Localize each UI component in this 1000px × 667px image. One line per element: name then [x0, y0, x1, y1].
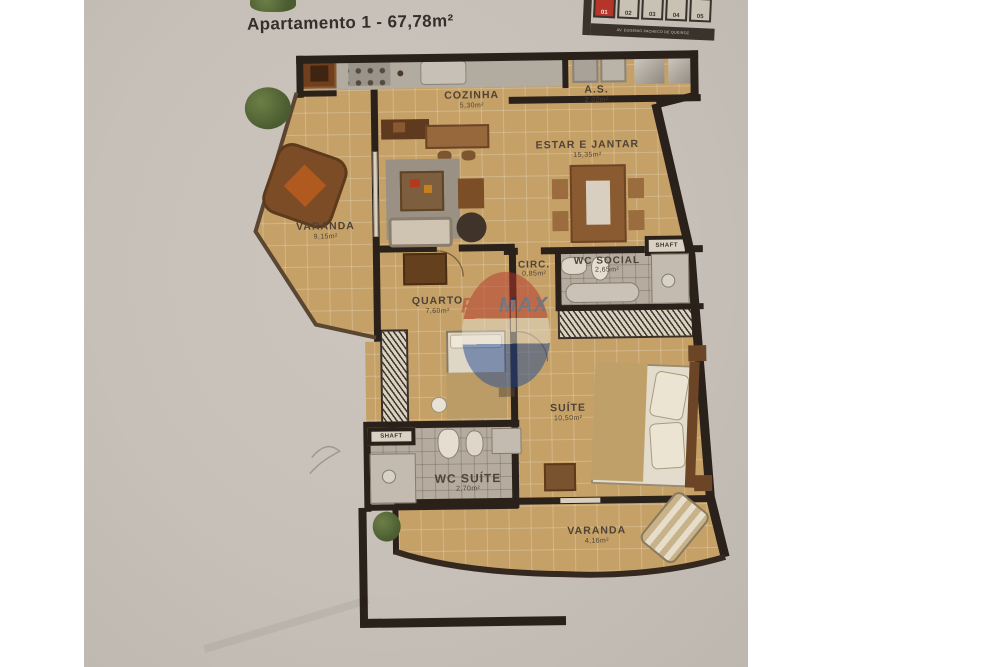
chair: [552, 179, 568, 199]
room-label-cozinha: COZINHA5,30m²: [417, 90, 527, 111]
room-label-varanda: VARANDA9,15m²: [280, 221, 370, 241]
table-runner: [586, 180, 611, 224]
bidet-icon: [465, 430, 483, 456]
remax-watermark: RE/MAX: [429, 267, 581, 411]
drain-icon: [661, 274, 675, 288]
floorplan-page: Apartamento 1 - 67,78m² 01 02 03 04 05 A…: [0, 0, 1000, 667]
toilet-icon: [437, 429, 459, 459]
tv-icon: [393, 122, 405, 132]
room-label-wc-suite: WC SUÍTE2,70m²: [422, 472, 514, 494]
sofa: [388, 217, 452, 248]
decor-item: [424, 185, 432, 193]
chair: [628, 178, 644, 198]
pillow: [649, 422, 686, 470]
chair: [552, 211, 568, 231]
room-label-varanda-2: VARANDA4,16m²: [551, 525, 643, 546]
remax-logo-text: RE/MAX: [429, 293, 579, 319]
nightstand: [688, 345, 706, 361]
cabinet: [458, 178, 484, 208]
kitchen-island: [425, 124, 489, 149]
balloon-icon: [461, 271, 551, 388]
remax-max: MAX: [499, 293, 549, 317]
coffee-table: [400, 171, 445, 212]
room-label-as: A.S.2,02m²: [573, 84, 621, 104]
floorplan: SHAFT SHAFT: [0, 0, 1000, 667]
bench: [544, 463, 576, 491]
nightstand: [694, 475, 712, 491]
decor-item: [410, 179, 420, 187]
room-label-estar: ESTAR E JANTAR15,35m²: [512, 139, 662, 160]
chair: [628, 210, 644, 230]
stool: [461, 150, 475, 160]
double-bed: [591, 354, 706, 492]
sink-icon: [491, 428, 521, 454]
balloon-basket: [499, 388, 515, 397]
remax-re: RE: [461, 294, 493, 317]
